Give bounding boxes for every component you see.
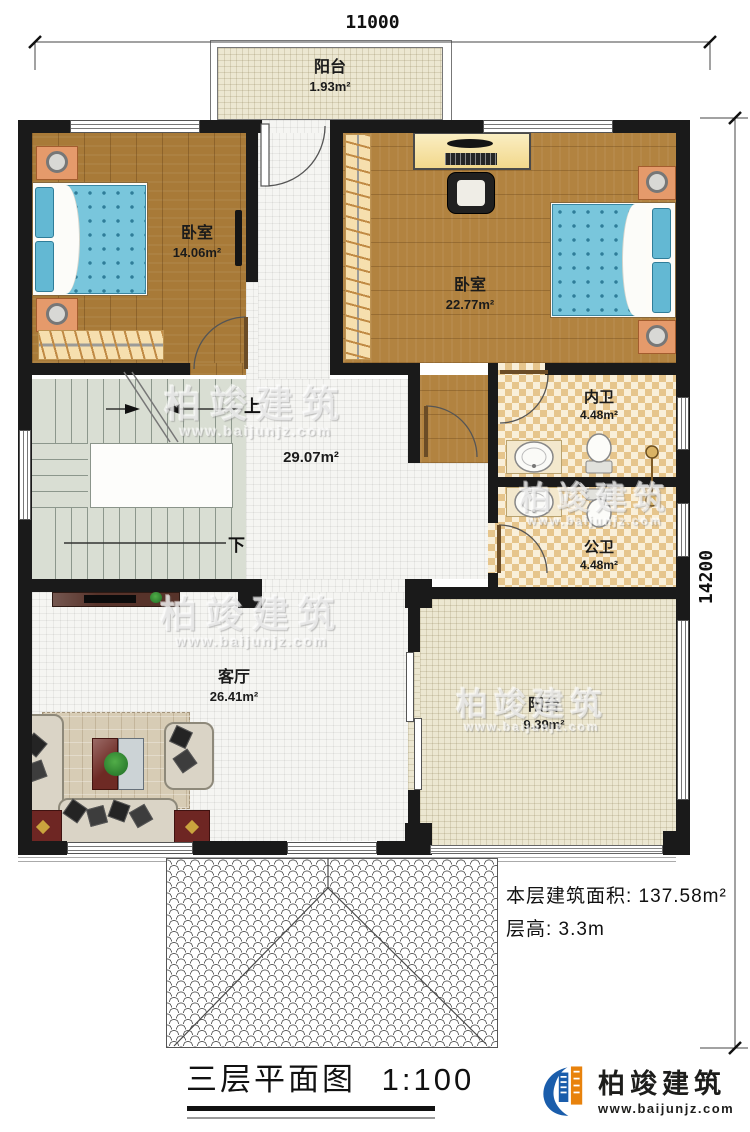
nightstand-icon	[36, 146, 78, 180]
lamp-icon	[646, 171, 668, 193]
left-bedroom-door-threshold	[190, 363, 246, 375]
lamp-icon	[46, 151, 68, 173]
window-inner-bath	[677, 397, 689, 450]
wall-column-balcony-br	[663, 831, 690, 855]
wall-top-1	[18, 120, 70, 133]
window-public-bath	[677, 503, 689, 557]
lamp-icon	[46, 303, 68, 325]
wall-bottom-2	[193, 841, 287, 855]
pillow-icon	[652, 262, 671, 313]
desk-icon	[413, 132, 531, 170]
wall-living-top	[18, 579, 258, 592]
room-label-balcony-bottom: 阳台 9.39m²	[523, 696, 564, 734]
stairs-lower-flight	[55, 508, 233, 579]
room-label-public-bath: 公卫 4.48m²	[580, 538, 618, 573]
room-label-left-bedroom: 卧室 14.06m²	[173, 224, 221, 262]
wall-inner-bath-top	[545, 363, 676, 375]
floor-notes: 本层建筑面积: 137.58m² 层高: 3.3m	[506, 880, 727, 947]
floor-area-note: 本层建筑面积: 137.58m²	[506, 880, 727, 913]
bed-sheet	[622, 204, 646, 316]
wall-column-hall	[238, 579, 262, 608]
vanity-counter	[506, 440, 562, 474]
wall-top-4	[613, 120, 690, 133]
title-underline-thick	[187, 1106, 435, 1111]
nightstand-icon	[36, 298, 78, 332]
room-label-right-bedroom: 卧室 22.77m²	[446, 276, 494, 314]
pillow-icon	[35, 187, 54, 238]
wall-bath-divider	[498, 477, 676, 487]
window-living-bottom-2	[287, 842, 377, 854]
stairs-landing	[90, 443, 233, 508]
wall-bath-left-upper	[488, 375, 498, 523]
wall-balcony-left-upper	[408, 599, 420, 652]
nightstand-icon	[638, 320, 676, 354]
pillow-icon	[35, 241, 54, 292]
wall-tv-icon	[235, 210, 242, 266]
window-right-bedroom-top	[483, 120, 613, 133]
logo-url: www.baijunjz.com	[598, 1101, 734, 1116]
stairs-upper-flight	[55, 379, 233, 443]
sliding-door-panel	[406, 652, 414, 722]
room-label-living: 客厅 26.41m²	[210, 668, 258, 706]
tv-icon	[84, 595, 136, 603]
wardrobe-icon	[38, 330, 164, 360]
stairs-side-flight	[32, 443, 88, 508]
plant-icon	[150, 592, 162, 603]
railing-balcony-bottom	[430, 845, 663, 854]
vanity-counter	[506, 487, 562, 517]
wall-corridor-left	[246, 120, 258, 282]
wall-left-bedroom-bottom	[18, 363, 190, 375]
wall-top-3	[330, 120, 483, 133]
window-stairwell	[19, 430, 31, 520]
wardrobe-icon	[345, 134, 371, 360]
sliding-door-panel	[414, 718, 422, 790]
balcony-door-threshold	[262, 120, 330, 133]
keyboard-icon	[445, 153, 497, 165]
wall-bath-top-nub	[488, 363, 498, 375]
desk-lamp-icon	[447, 139, 493, 148]
window-balcony-right	[677, 620, 689, 800]
hall-living-opening	[258, 579, 408, 593]
stairs-down-label: 下	[228, 531, 245, 556]
wall-vestibule-left	[408, 375, 420, 463]
floorplan-canvas: 11000 14200	[0, 0, 750, 1132]
window-living-bottom-1	[67, 842, 193, 854]
chair-seat	[457, 180, 485, 206]
corridor-floor	[258, 132, 330, 379]
bedroom-vestibule-floor	[420, 375, 498, 463]
logo-icon	[538, 1060, 590, 1118]
lamp-icon	[646, 325, 668, 347]
wall-right-bedroom-bottom	[343, 363, 420, 375]
plan-title: 三层平面图 1:100	[186, 1054, 474, 1099]
room-label-balcony-top: 阳台 1.93m²	[309, 58, 350, 96]
dimension-top: 11000	[35, 12, 710, 33]
wall-corridor-right	[330, 120, 343, 375]
dimension-right: 14200	[696, 522, 717, 632]
room-label-hall: 29.07m²	[283, 448, 339, 468]
wall-column-balcony-bl	[405, 823, 432, 855]
title-underline-thin	[187, 1117, 435, 1119]
nightstand-icon	[638, 166, 676, 200]
stairs-up-label: 上	[244, 392, 261, 417]
chair-icon	[447, 172, 495, 214]
inner-bath-door-threshold	[498, 363, 545, 375]
pillow-icon	[652, 208, 671, 259]
plant-icon	[104, 752, 128, 776]
floor-height-note: 层高: 3.3m	[506, 913, 727, 946]
roof-tiles	[166, 858, 498, 1048]
public-bath-door-threshold	[488, 523, 498, 573]
logo-name: 柏竣建筑	[598, 1062, 734, 1101]
company-logo: 柏竣建筑 www.baijunjz.com	[538, 1060, 734, 1118]
corridor-floor-patch	[246, 282, 258, 379]
wall-balcony-top	[408, 587, 676, 599]
window-left-bedroom-top	[70, 120, 200, 133]
wall-bottom-1	[18, 841, 67, 855]
room-label-inner-bath: 内卫 4.48m²	[580, 388, 618, 423]
